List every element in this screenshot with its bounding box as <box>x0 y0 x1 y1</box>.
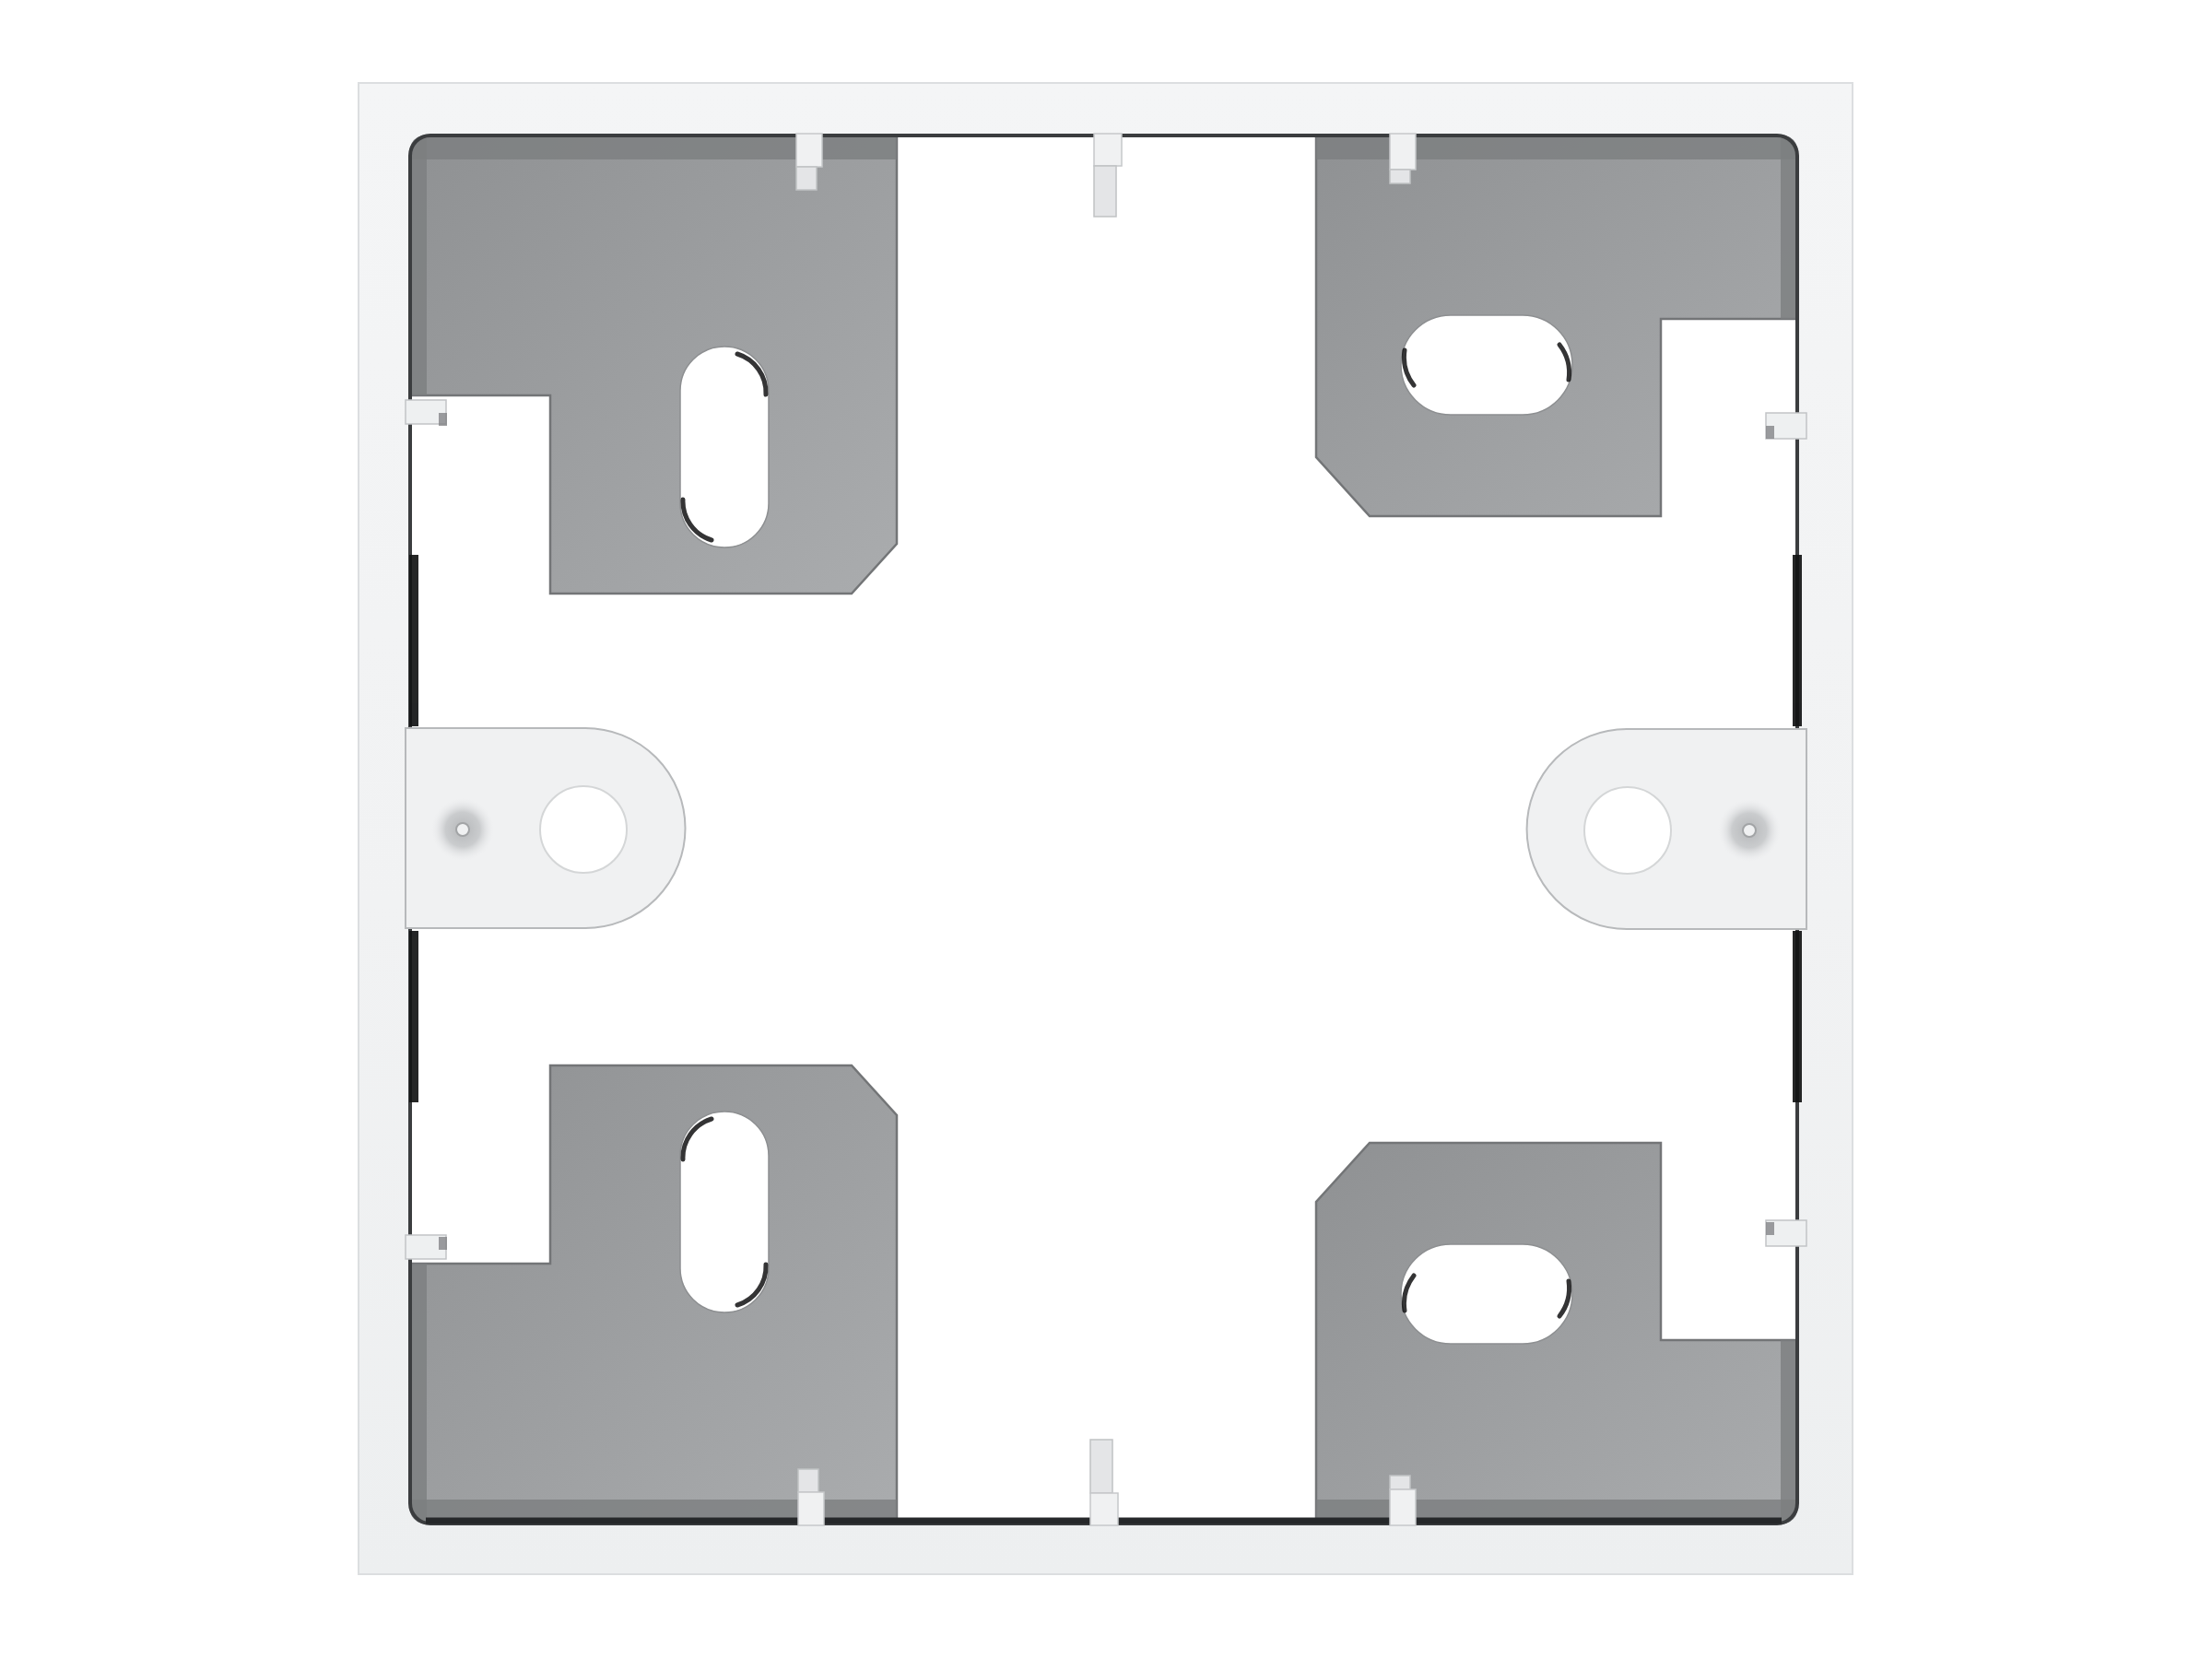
edge-clip-step <box>1390 170 1410 183</box>
screw-hole-right <box>1584 787 1671 874</box>
dimple-dot-left <box>456 823 469 836</box>
slot-horizontal-bottom-right <box>1401 1244 1572 1344</box>
edge-clip-step <box>1090 1440 1112 1493</box>
slot-vertical-top-left <box>680 347 769 547</box>
edge-clip <box>798 1492 824 1525</box>
wall-shadow-right-lower <box>1793 931 1802 1102</box>
edge-clip <box>1094 134 1122 166</box>
edge-clip <box>1390 134 1416 170</box>
wall-shadow-left-upper <box>409 555 418 726</box>
edge-clip-step <box>796 167 817 190</box>
edge-clip-step <box>798 1469 818 1492</box>
dimple-dot-right <box>1743 824 1756 837</box>
wall-clip-shadow <box>1766 1222 1774 1235</box>
edge-clip <box>796 134 822 167</box>
slot-horizontal-top-right <box>1401 315 1572 415</box>
screw-hole-left <box>540 786 627 873</box>
wall-clip-shadow <box>1766 426 1774 439</box>
edge-clip-step <box>1390 1476 1410 1489</box>
wall-shadow-left-lower <box>409 931 418 1102</box>
wall-shadow-right-upper <box>1793 555 1802 726</box>
edge-clip <box>1090 1493 1118 1525</box>
backbox-frame-illustration <box>0 0 2212 1659</box>
slot-vertical-bottom-left <box>680 1112 769 1312</box>
product-photo <box>0 0 2212 1659</box>
wall-clip-shadow <box>439 1237 447 1250</box>
wall-clip-shadow <box>439 413 447 426</box>
edge-clip <box>1390 1489 1416 1525</box>
edge-clip-step <box>1094 166 1116 217</box>
